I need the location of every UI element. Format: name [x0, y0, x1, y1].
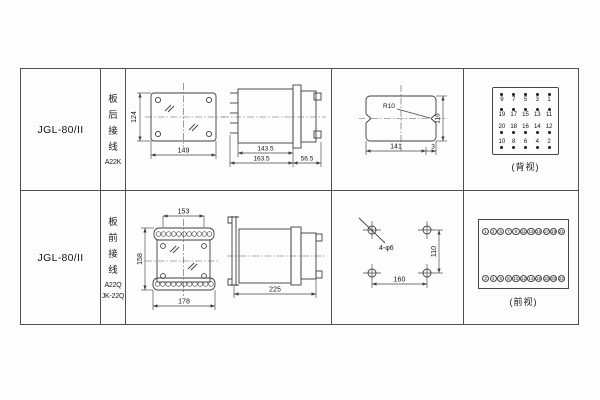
terminal-view-cell-front: 13579111315171921 246810121416182022 (前视… [464, 191, 578, 324]
terminal: 11 [520, 228, 527, 235]
dim-top-width: 153 [178, 209, 190, 216]
terminal: 17 [543, 228, 550, 235]
terminal-view-cell-rear: 9753119171513112018161412108642 (背视) [464, 69, 578, 191]
model-cell-rear: JGL-80/II [21, 69, 101, 191]
front-wiring-front-view-drawing: 153 158 178 [137, 203, 225, 315]
dim-total-depth: 163.5 [253, 156, 270, 163]
terminal: 5 [520, 90, 532, 106]
terminal: 18 [508, 121, 520, 137]
terminal: 10 [496, 137, 508, 153]
terminal: 7 [505, 228, 512, 235]
terminal: 2 [482, 275, 489, 282]
case-outline [153, 228, 215, 290]
model-label: JGL-80/II [38, 124, 84, 136]
terminal: 14 [531, 121, 543, 137]
front-terminal-row-bottom: 246810121416182022 [482, 275, 565, 282]
front-terminal-layout: 13579111315171921 246810121416182022 [478, 219, 569, 289]
terminal: 7 [508, 90, 520, 106]
wiring-char: 板 [108, 95, 118, 105]
wiring-char: 后 [108, 111, 118, 121]
terminal: 4 [531, 137, 543, 153]
relay-body-outline [230, 85, 321, 148]
dim-total-depth: 225 [269, 287, 281, 294]
terminal: 15 [520, 106, 532, 122]
terminal: 15 [535, 228, 542, 235]
terminal: 13 [527, 228, 534, 235]
wiring-code-2: JK-22Q [102, 293, 125, 301]
model-cell-front: JGL-80/II [21, 191, 101, 324]
wiring-code: A22K [105, 159, 121, 167]
corner-radius-label: R10 [383, 103, 395, 110]
wiring-char: 接 [108, 127, 118, 137]
terminal: 1 [543, 90, 555, 106]
terminal: 5 [497, 228, 504, 235]
wiring-char: 线 [108, 266, 118, 276]
relay-body-outline [228, 216, 322, 286]
hole-spec-label: 4-φ6 [379, 245, 394, 252]
terminal: 3 [490, 228, 497, 235]
dim-notch: 3 [431, 144, 435, 151]
radius-leader [397, 109, 430, 118]
front-terminal-row-top: 13579111315171921 [482, 228, 565, 235]
dim-height: 124 [131, 111, 138, 123]
wiring-type-cell-rear: 板 后 接 线 A22K [101, 69, 126, 191]
terminal: 2 [543, 137, 555, 153]
terminal: 19 [496, 106, 508, 122]
dim-cutout-width: 141 [390, 144, 402, 151]
terminal: 16 [520, 121, 532, 137]
front-wiring-side-view-drawing: 225 [227, 209, 327, 301]
terminal: 13 [531, 106, 543, 122]
drilling-template-cell: 4-φ6 110 160 [332, 191, 464, 324]
terminal: 9 [496, 90, 508, 106]
wiring-code: A22Q [104, 282, 121, 290]
terminal: 12 [520, 275, 527, 282]
terminal: 22 [558, 275, 565, 282]
terminal: 8 [505, 275, 512, 282]
rear-view-caption: (背视) [492, 160, 559, 173]
mounting-holes [368, 226, 431, 277]
rear-wiring-side-view-drawing: 143.5 163.5 56.5 [222, 79, 328, 171]
terminal: 1 [482, 228, 489, 235]
dim-front-depth: 56.5 [301, 156, 314, 163]
wiring-char: 前 [108, 234, 118, 244]
terminal: 10 [512, 275, 519, 282]
dim-hole-spacing-h: 160 [394, 277, 406, 284]
rear-terminal-grid: 9753119171513112018161412108642 [492, 87, 559, 155]
terminal: 8 [508, 137, 520, 153]
spec-table: JGL-80/II 板 后 接 线 A22K [20, 68, 579, 325]
wiring-char: 接 [108, 250, 118, 260]
dimension-lines [141, 216, 215, 310]
terminal: 19 [550, 228, 557, 235]
terminal: 20 [496, 121, 508, 137]
dim-bottom-width: 178 [178, 299, 190, 306]
terminal: 6 [520, 137, 532, 153]
terminal: 14 [527, 275, 534, 282]
terminal: 9 [512, 228, 519, 235]
terminal: 4 [490, 275, 497, 282]
terminal: 11 [543, 106, 555, 122]
dimension-lines [137, 93, 216, 159]
terminal: 18 [543, 275, 550, 282]
terminal: 20 [550, 275, 557, 282]
panel-cutout-drawing: R10 141 3 116 [357, 85, 451, 157]
front-view-caption: (前视) [478, 295, 569, 308]
drilling-template-drawing: 4-φ6 110 160 [354, 214, 450, 294]
terminal: 3 [531, 90, 543, 106]
dim-cutout-height: 116 [435, 113, 442, 124]
rear-wiring-front-view-drawing: 124 149 [129, 81, 233, 169]
wiring-char: 板 [108, 218, 118, 228]
wiring-type-cell-front: 板 前 接 线 A22Q JK-22Q [101, 191, 126, 324]
terminal-screws-top [156, 232, 212, 237]
dimension-drawings-cell-front: 153 158 178 225 [126, 191, 332, 324]
terminal: 17 [508, 106, 520, 122]
terminal: 6 [497, 275, 504, 282]
panel-cutout-cell: R10 141 3 116 [332, 69, 464, 191]
dim-width: 149 [178, 148, 190, 155]
dimension-drawings-cell-rear: 124 149 143.5 [126, 69, 332, 191]
hole-crosshairs [363, 221, 436, 282]
model-label: JGL-80/II [38, 252, 84, 264]
dim-height: 158 [137, 253, 144, 265]
dim-body-depth: 143.5 [257, 146, 274, 153]
dimension-lines [366, 96, 447, 155]
terminal: 21 [558, 228, 565, 235]
drawing-sheet: { "table": { "rows": [ { "model": "JGL-8… [0, 0, 600, 400]
dim-hole-spacing-v: 110 [431, 246, 438, 257]
dimension-lines [372, 230, 443, 288]
terminal: 12 [543, 121, 555, 137]
terminal: 16 [535, 275, 542, 282]
wiring-char: 线 [108, 143, 118, 153]
